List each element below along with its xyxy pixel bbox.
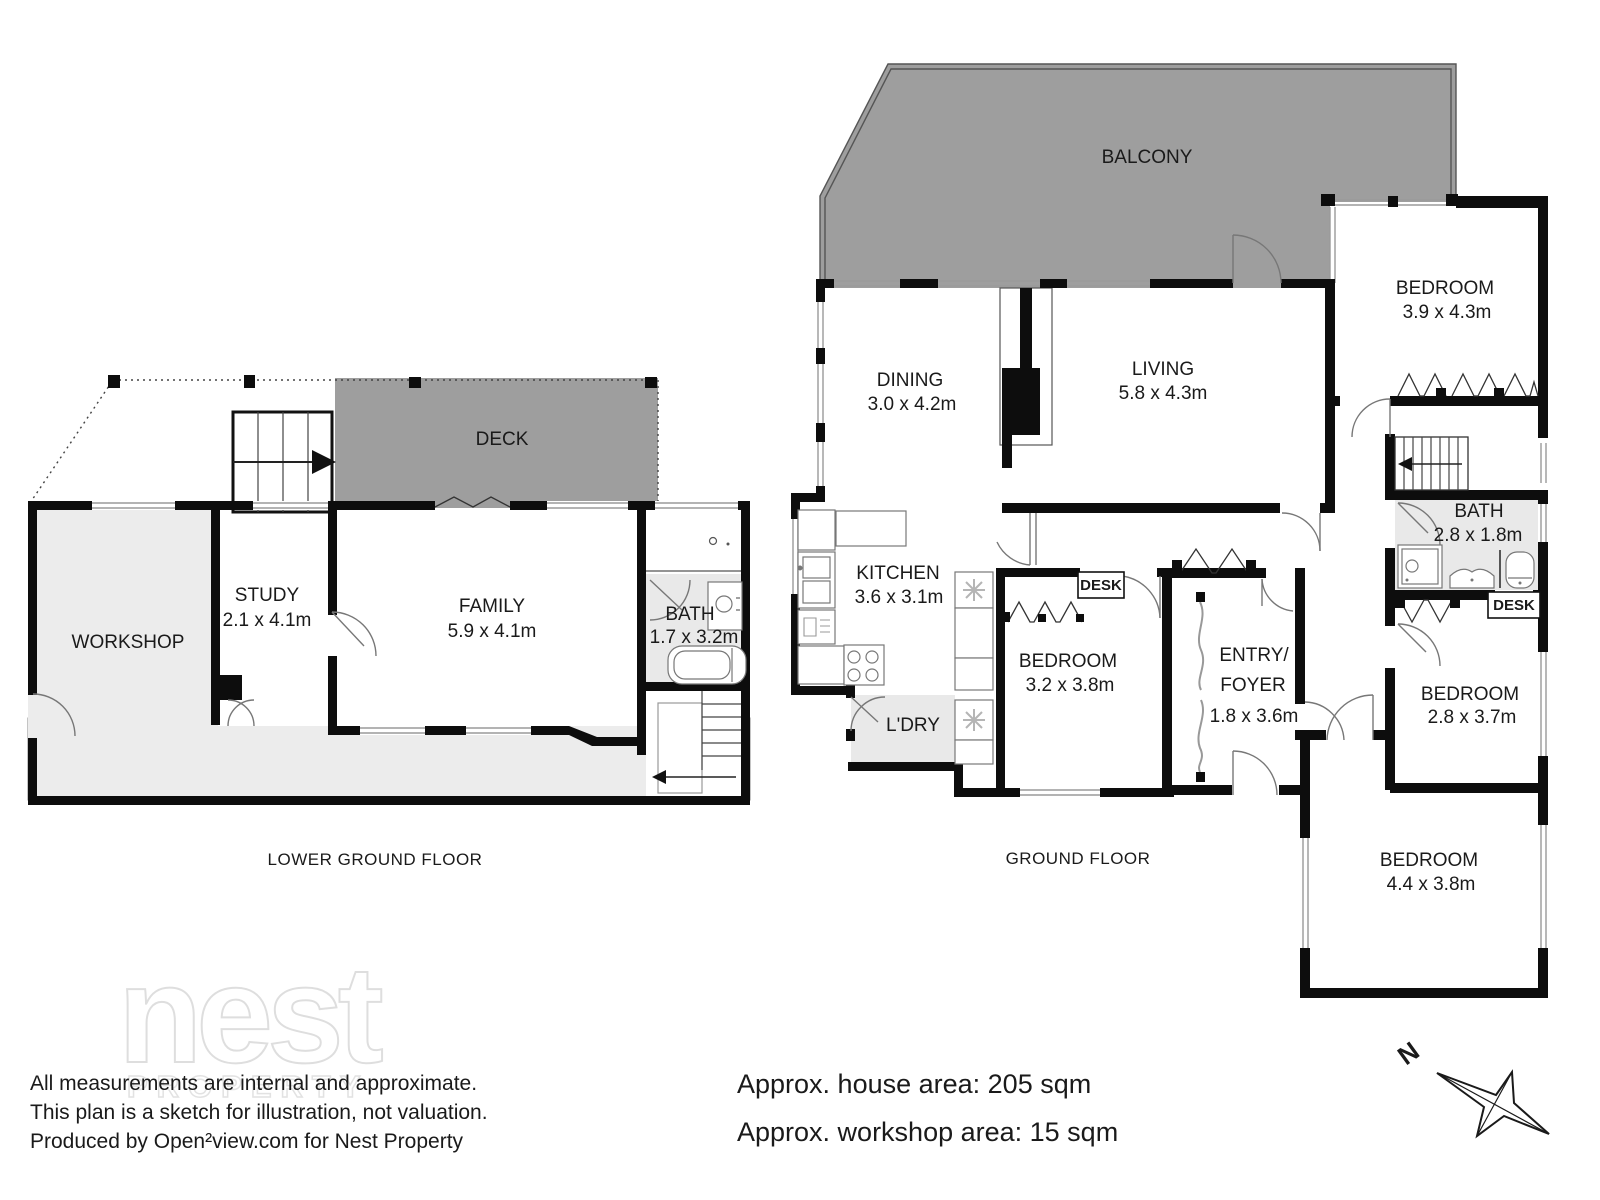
room-dims-entry: 1.8 x 3.6m xyxy=(1210,706,1299,727)
room-label-deck: DECK xyxy=(476,429,529,450)
room-label-bedroom2: BEDROOM xyxy=(1019,651,1117,672)
wardrobe-icon xyxy=(963,709,985,731)
deck-post xyxy=(409,377,421,388)
kitchen-door-arc xyxy=(997,542,1030,565)
closet-column xyxy=(955,572,993,764)
compass-icon: N xyxy=(1392,1036,1549,1136)
deck-post xyxy=(645,377,657,388)
room-label-study: STUDY xyxy=(235,585,300,606)
bedroom1-door-arc xyxy=(1352,399,1390,437)
balcony-area xyxy=(820,64,1456,288)
room-label-bedroom4: BEDROOM xyxy=(1380,850,1478,871)
room-label-balcony: BALCONY xyxy=(1102,147,1193,168)
workshop-area-text: Approx. workshop area: 15 sqm xyxy=(737,1117,1118,1147)
room-label-living: LIVING xyxy=(1132,359,1194,380)
desk-label: DESK xyxy=(1080,577,1122,594)
disclaimer-line-3: Produced by Open²view.com for Nest Prope… xyxy=(30,1130,464,1153)
entry-screen xyxy=(1196,592,1205,782)
desk-label: DESK xyxy=(1493,597,1535,614)
floor-plan-page: nest PROPERTY xyxy=(0,0,1600,1200)
deck-post xyxy=(108,375,120,388)
bedroom4-door-arc xyxy=(1327,695,1373,740)
disclaimer-line-1: All measurements are internal and approx… xyxy=(30,1072,477,1095)
stairs-arrow xyxy=(1398,457,1412,471)
lower-ground-floor: DECK WORKSHOP STUDY 2.1 x 4.1m FAMILY 5.… xyxy=(28,375,750,869)
fridge-icon xyxy=(836,511,906,546)
room-dims-kitchen: 3.6 x 3.1m xyxy=(855,587,944,608)
room-dims-family: 5.9 x 4.1m xyxy=(448,621,537,642)
room-label-entry1: ENTRY/ xyxy=(1219,645,1289,666)
desk-box-2: DESK xyxy=(1488,592,1540,618)
workshop-floor xyxy=(28,508,214,800)
room-dims-bedroom4: 4.4 x 3.8m xyxy=(1387,874,1476,895)
house-area-text: Approx. house area: 205 sqm xyxy=(737,1069,1091,1099)
hall-door-arc xyxy=(1282,513,1320,551)
lower-floor-title: LOWER GROUND FLOOR xyxy=(268,850,483,869)
room-label-bedroom1: BEDROOM xyxy=(1396,278,1494,299)
wc-floor xyxy=(646,510,742,572)
ground-stairs xyxy=(1395,437,1468,490)
room-label-entry2: FOYER xyxy=(1220,675,1285,696)
bedroom2-door-arc xyxy=(1122,576,1160,618)
dot-icon xyxy=(727,543,730,546)
room-label-dining: DINING xyxy=(877,370,944,391)
disclaimer-line-2: This plan is a sketch for illustration, … xyxy=(30,1101,488,1124)
room-dims-dining: 3.0 x 4.2m xyxy=(868,394,957,415)
ground-floor: DESK DESK BALCONY DINING 3.0 x 4.2m LIVI… xyxy=(791,64,1548,998)
desk-box-1: DESK xyxy=(1078,572,1124,598)
room-dims-study: 2.1 x 4.1m xyxy=(223,610,312,631)
deck-stairs xyxy=(233,412,336,512)
fireplace xyxy=(1000,288,1052,468)
room-dims-living: 5.8 x 4.3m xyxy=(1119,383,1208,404)
room-label-bedroom3: BEDROOM xyxy=(1421,684,1519,705)
room-dims-bath-ground: 2.8 x 1.8m xyxy=(1434,525,1523,546)
floor-plan-canvas: nest PROPERTY xyxy=(0,0,1600,1200)
room-label-bath-ground: BATH xyxy=(1454,501,1503,522)
deck-post xyxy=(244,375,255,388)
compass-north-label: N xyxy=(1392,1036,1425,1071)
room-label-bath-lower: BATH xyxy=(665,604,714,625)
room-label-laundry: L'DRY xyxy=(886,715,940,736)
family-floor xyxy=(336,510,638,726)
room-dims-bedroom1: 3.9 x 4.3m xyxy=(1403,302,1492,323)
foyer-top-door-arc xyxy=(1262,579,1293,611)
foyer-door-arc xyxy=(1233,751,1277,795)
footer: All measurements are internal and approx… xyxy=(30,1069,1118,1153)
boundary-dashed-left xyxy=(30,380,113,503)
room-label-kitchen: KITCHEN xyxy=(856,563,939,584)
room-dims-bedroom3: 2.8 x 3.7m xyxy=(1428,707,1517,728)
room-label-workshop: WORKSHOP xyxy=(72,632,185,653)
room-label-family: FAMILY xyxy=(459,596,525,617)
room-dims-bedroom2: 3.2 x 3.8m xyxy=(1026,675,1115,696)
wardrobe-icon xyxy=(963,579,985,601)
ground-floor-title: GROUND FLOOR xyxy=(1006,849,1151,868)
room-dims-bath-lower: 1.7 x 3.2m xyxy=(650,627,739,648)
